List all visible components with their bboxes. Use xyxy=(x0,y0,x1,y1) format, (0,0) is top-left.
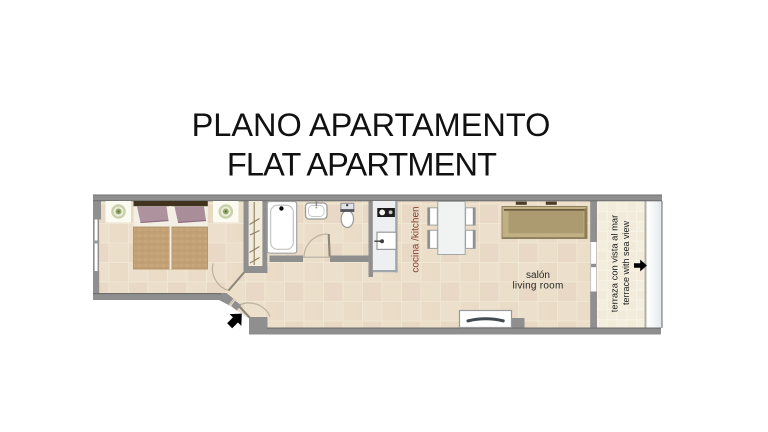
svg-text:living room: living room xyxy=(512,281,563,292)
svg-text:PLANO APARTAMENTO: PLANO APARTAMENTO xyxy=(192,107,551,143)
svg-text:salón: salón xyxy=(526,270,550,281)
svg-text:terrace with sea view: terrace with sea view xyxy=(621,220,631,305)
svg-text:terraza con vista al mar: terraza con vista al mar xyxy=(608,215,619,312)
svg-text:cocina /kitchen: cocina /kitchen xyxy=(411,206,422,272)
svg-text:FLAT APARTMENT: FLAT APARTMENT xyxy=(227,147,497,183)
